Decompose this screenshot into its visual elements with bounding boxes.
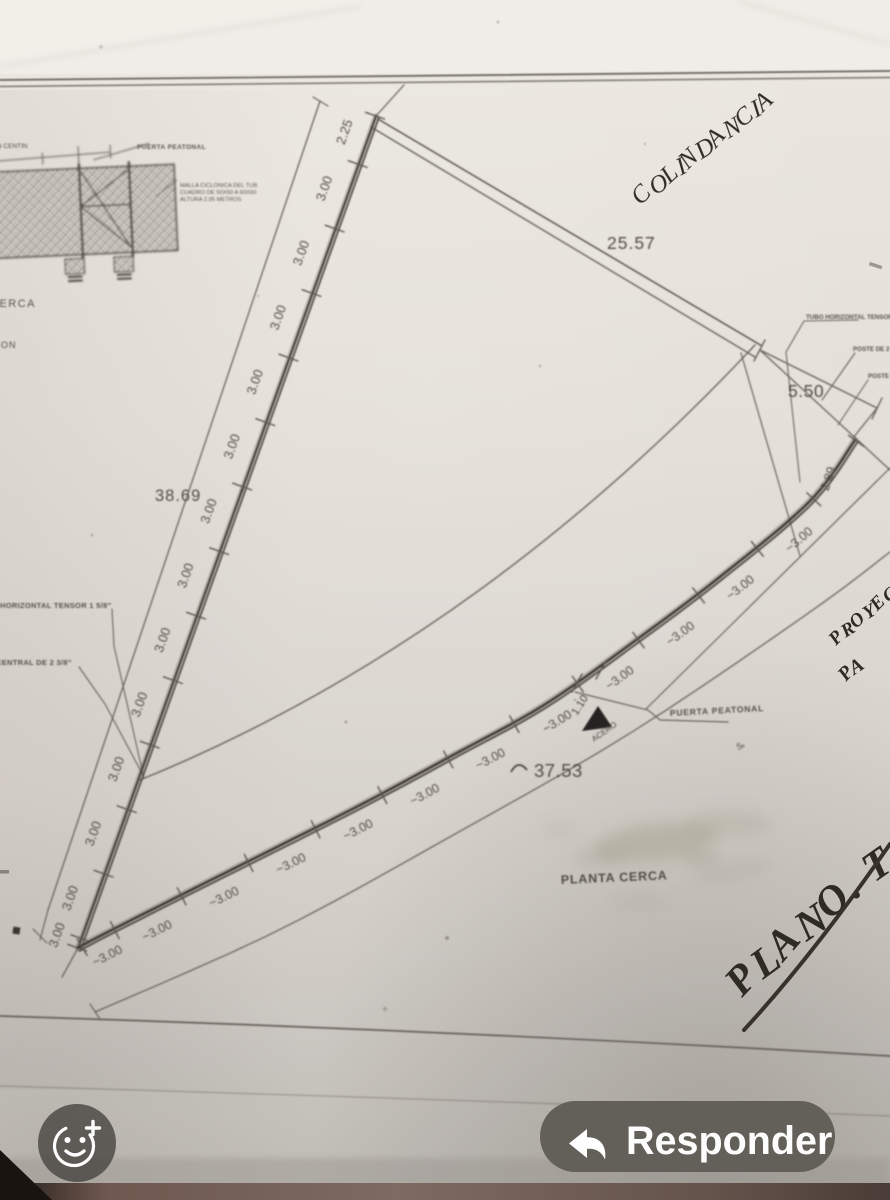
svg-text:ALTURA 2.05 METROS: ALTURA 2.05 METROS bbox=[180, 197, 242, 203]
svg-text:25.57: 25.57 bbox=[607, 233, 656, 253]
svg-text:HORIZONTAL TENSOR 1 5/8″: HORIZONTAL TENSOR 1 5/8″ bbox=[0, 601, 111, 610]
svg-text:CENTRAL DE 2 3/8″: CENTRAL DE 2 3/8″ bbox=[0, 658, 72, 667]
svg-text:38.69: 38.69 bbox=[155, 487, 201, 505]
svg-text:CUADRO DE 50X50 A 60X60: CUADRO DE 50X50 A 60X60 bbox=[180, 190, 256, 196]
svg-text:SECCION CENTIN: SECCION CENTIN bbox=[0, 143, 28, 150]
svg-text:CERCA: CERCA bbox=[0, 298, 36, 310]
svg-text:5.50: 5.50 bbox=[788, 381, 824, 401]
svg-text:37.53: 37.53 bbox=[534, 760, 583, 781]
svg-text:Responder: Responder bbox=[626, 1119, 832, 1163]
svg-text:SON: SON bbox=[0, 340, 17, 350]
svg-text:PUERTA PEATONAL: PUERTA PEATONAL bbox=[137, 144, 206, 151]
svg-text:TUBO HORIZONTAL TENSOR: TUBO HORIZONTAL TENSOR bbox=[806, 314, 890, 321]
svg-text:POSTE: POSTE bbox=[868, 373, 889, 380]
svg-text:POSTE DE 2: POSTE DE 2 bbox=[853, 346, 890, 353]
svg-text:MALLA CICLONICA DEL TUB: MALLA CICLONICA DEL TUB bbox=[180, 183, 257, 189]
